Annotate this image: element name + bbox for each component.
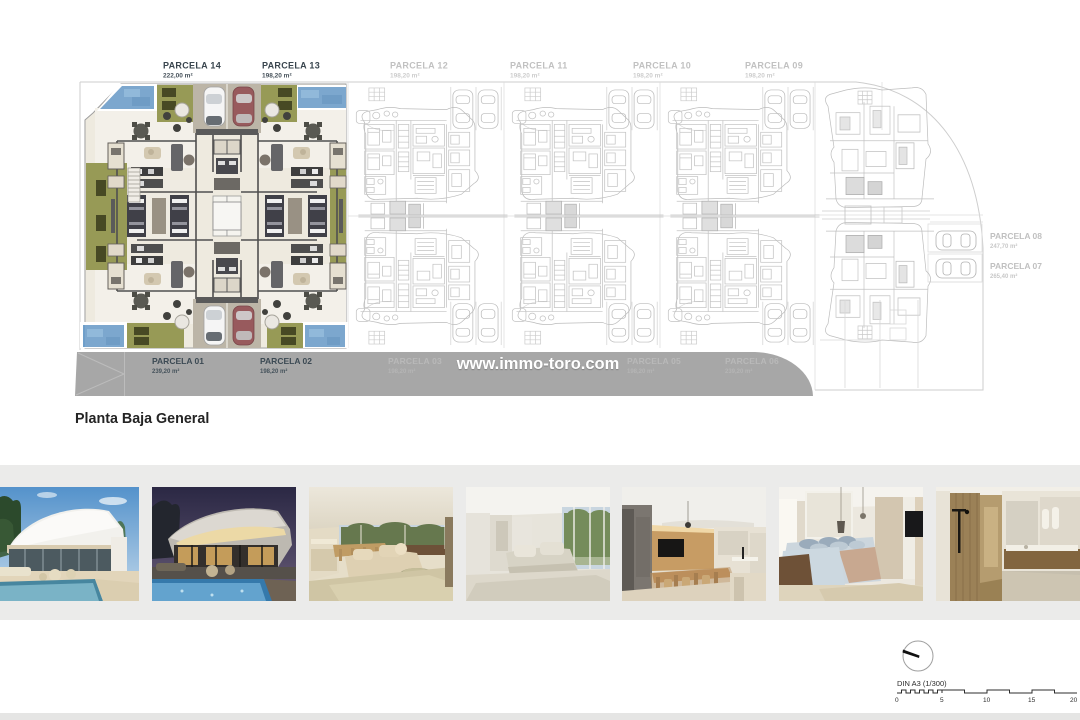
svg-text:198,20 m²: 198,20 m² — [260, 368, 287, 375]
svg-text:198,20 m²: 198,20 m² — [390, 73, 420, 80]
svg-text:198,20 m²: 198,20 m² — [262, 73, 292, 80]
svg-text:PARCELA 14: PARCELA 14 — [163, 61, 221, 71]
svg-text:PARCELA 08: PARCELA 08 — [990, 231, 1042, 241]
svg-text:222,00 m²: 222,00 m² — [163, 73, 193, 80]
svg-text:198,20 m²: 198,20 m² — [745, 73, 775, 80]
svg-text:PARCELA 02: PARCELA 02 — [260, 356, 312, 366]
svg-text:198,20 m²: 198,20 m² — [633, 73, 663, 80]
svg-text:PARCELA 13: PARCELA 13 — [262, 61, 320, 71]
svg-text:5: 5 — [940, 697, 944, 704]
svg-text:Planta Baja General: Planta Baja General — [75, 411, 209, 427]
svg-text:239,20 m²: 239,20 m² — [725, 368, 752, 375]
svg-text:PARCELA 05: PARCELA 05 — [627, 356, 681, 366]
svg-text:PARCELA 07: PARCELA 07 — [990, 261, 1042, 271]
svg-text:198,20 m²: 198,20 m² — [510, 73, 540, 80]
svg-text:0: 0 — [895, 697, 899, 704]
svg-text:265,40 m²: 265,40 m² — [990, 273, 1017, 280]
svg-text:PARCELA 03: PARCELA 03 — [388, 356, 442, 366]
svg-text:247,70 m²: 247,70 m² — [990, 243, 1017, 250]
svg-text:PARCELA 06: PARCELA 06 — [725, 356, 779, 366]
svg-text:PARCELA 11: PARCELA 11 — [510, 61, 568, 71]
svg-text:PARCELA 10: PARCELA 10 — [633, 61, 691, 71]
svg-text:PARCELA 12: PARCELA 12 — [390, 61, 448, 71]
svg-text:239,20 m²: 239,20 m² — [152, 368, 179, 375]
svg-text:DIN A3 (1/300): DIN A3 (1/300) — [897, 679, 947, 688]
svg-text:10: 10 — [983, 697, 991, 704]
svg-text:198,20 m²: 198,20 m² — [388, 368, 415, 375]
svg-text:PARCELA 09: PARCELA 09 — [745, 61, 803, 71]
svg-text:198,20 m²: 198,20 m² — [627, 368, 654, 375]
svg-text:20: 20 — [1070, 697, 1078, 704]
svg-text:15: 15 — [1028, 697, 1036, 704]
svg-text:www.immo-toro.com: www.immo-toro.com — [456, 355, 620, 373]
svg-text:PARCELA 01: PARCELA 01 — [152, 356, 204, 366]
